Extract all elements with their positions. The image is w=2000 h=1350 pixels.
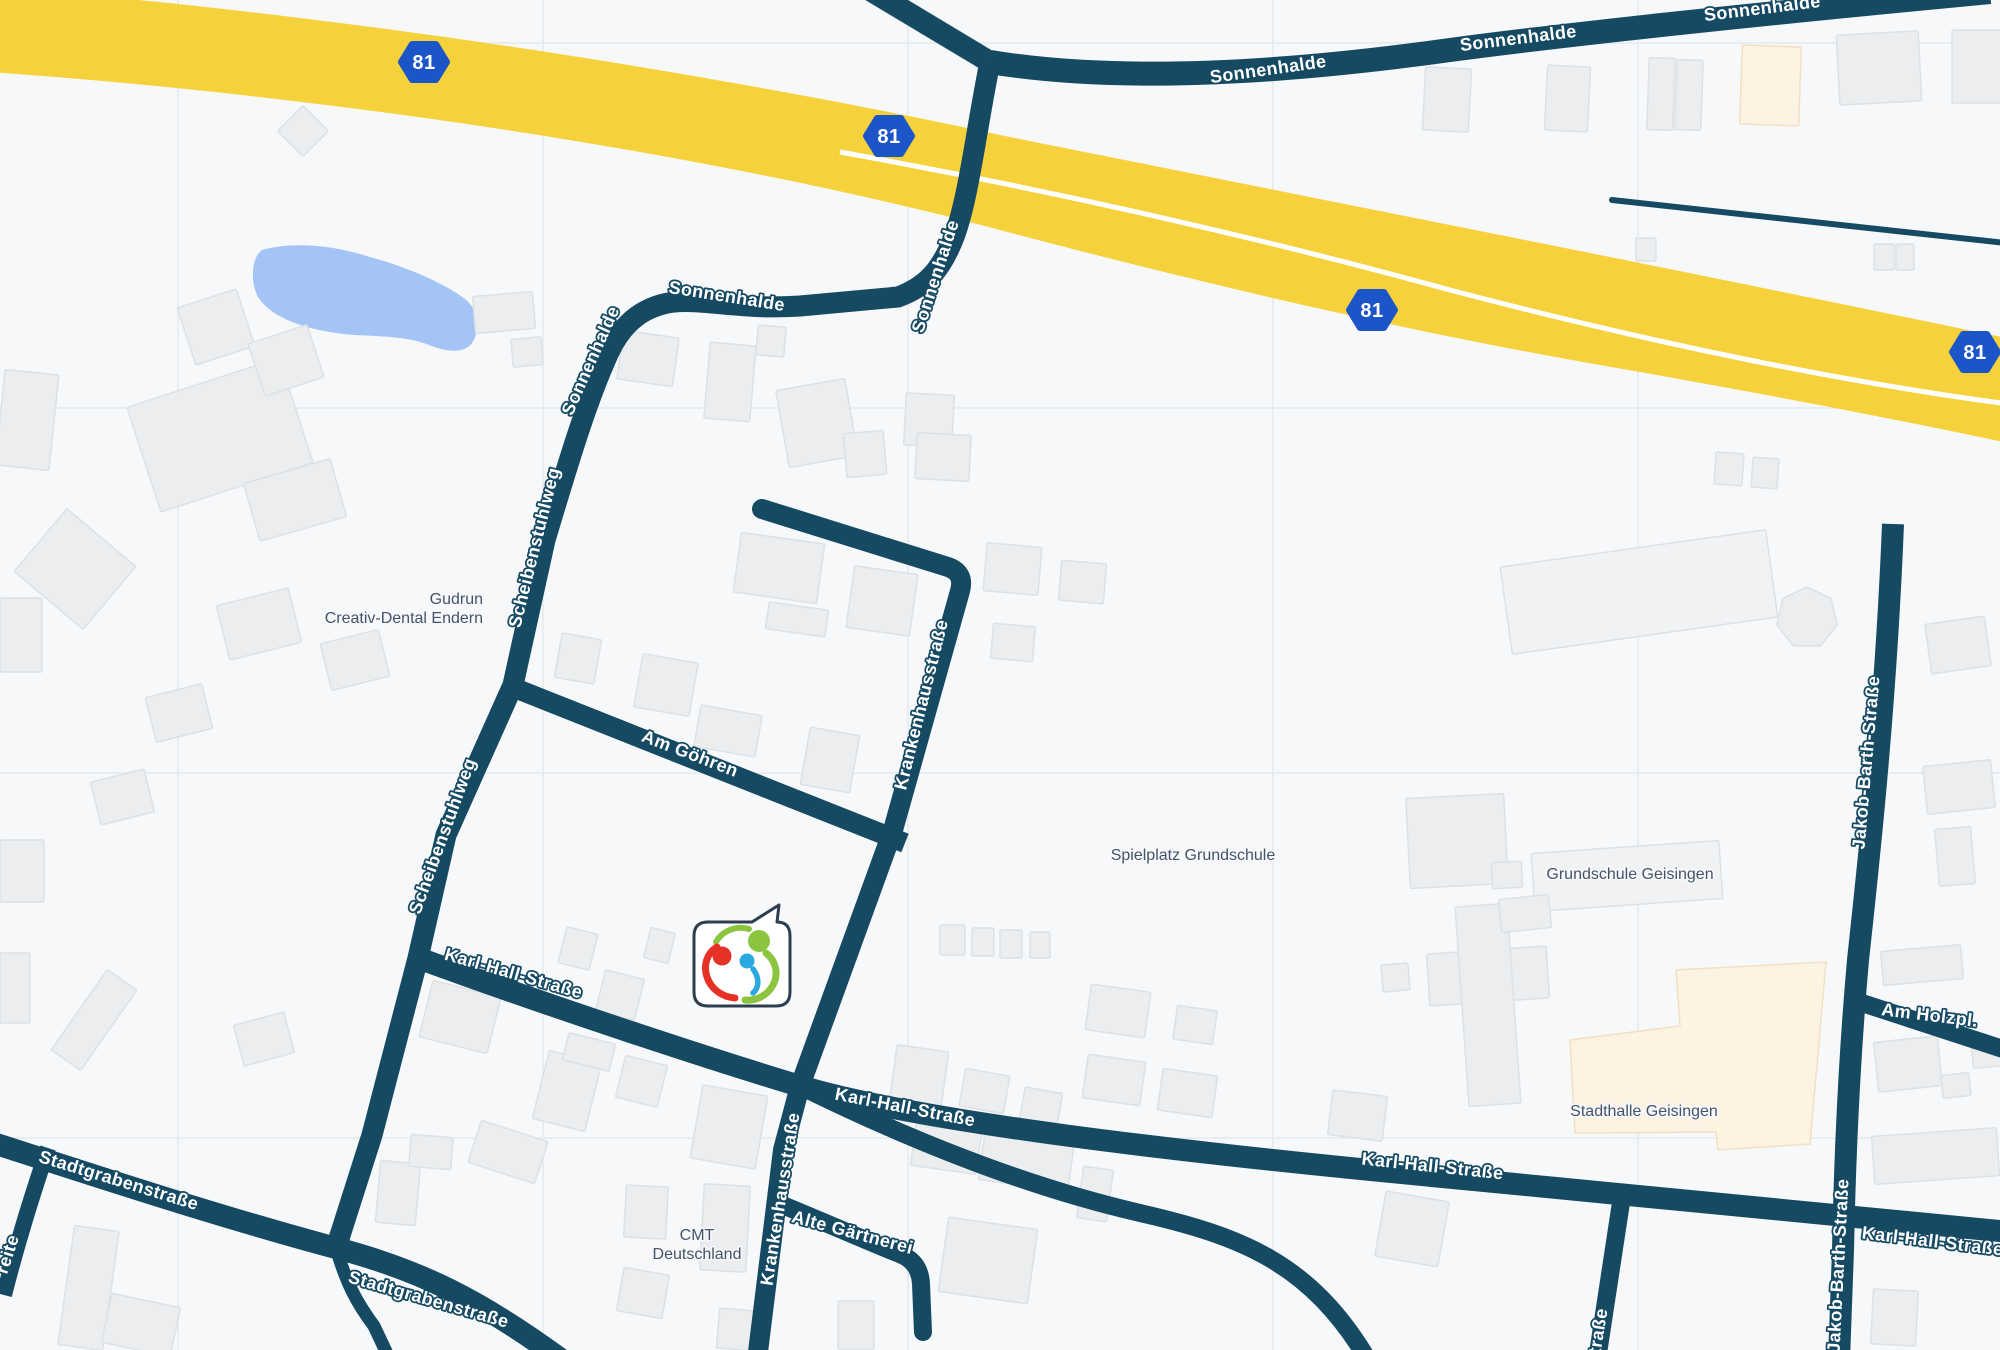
poi-label-gudrun-creativ-dental: Gudrun: [430, 591, 483, 608]
route-badge-81: 81: [1952, 334, 1998, 370]
route-badge-81: 81: [401, 44, 447, 80]
building: [1675, 60, 1703, 131]
building: [1941, 1073, 1971, 1099]
building: [473, 291, 536, 333]
building: [1836, 31, 1922, 105]
building: [838, 1301, 874, 1349]
building: [1157, 1068, 1217, 1117]
building: [1636, 238, 1656, 261]
building: [1058, 560, 1106, 604]
building: [1874, 244, 1894, 270]
poi-label-stadthalle-geisingen: Stadthalle Geisingen: [1570, 1103, 1718, 1120]
logo-head: [748, 930, 770, 952]
building: [1874, 1036, 1943, 1092]
building: [0, 840, 44, 902]
building: [940, 925, 965, 955]
building: [1896, 244, 1914, 270]
building: [1422, 67, 1471, 132]
logo-head: [713, 947, 732, 966]
building: [915, 433, 971, 482]
building: [1491, 861, 1522, 889]
building: [1740, 45, 1802, 126]
building: [554, 633, 601, 684]
building: [511, 337, 543, 368]
building: [972, 928, 994, 956]
building: [1871, 1128, 1999, 1185]
building: [1082, 1054, 1146, 1106]
building: [1085, 984, 1151, 1038]
building: [1871, 1289, 1919, 1346]
building: [634, 654, 699, 717]
building: [409, 1134, 454, 1170]
building: [1000, 930, 1022, 958]
map-canvas[interactable]: SonnenhaldeSonnenhaldeSonnenhaldeSonnenh…: [0, 0, 2000, 1350]
building: [624, 1185, 669, 1239]
building: [733, 532, 825, 603]
building: [846, 566, 918, 636]
route-badge-81: 81: [1349, 292, 1395, 328]
building: [1881, 945, 1964, 986]
building: [1498, 894, 1551, 932]
building: [1173, 1005, 1217, 1044]
building: [800, 727, 859, 793]
building: [1935, 827, 1976, 887]
building: [983, 543, 1042, 596]
building: [959, 1068, 1010, 1113]
route-badge-label: 81: [1360, 300, 1383, 322]
building: [1751, 457, 1779, 489]
logo-head: [740, 954, 755, 969]
building: [1375, 1191, 1449, 1267]
building: [617, 1267, 670, 1318]
poi-label-cmt-deutschland: CMT: [680, 1227, 715, 1244]
route-badge-label: 81: [412, 52, 435, 74]
building: [1925, 616, 1991, 674]
building: [0, 369, 59, 470]
building: [1381, 963, 1410, 992]
building: [1647, 58, 1675, 131]
building: [704, 342, 756, 422]
building: [1544, 65, 1590, 132]
route-badge-label: 81: [877, 126, 900, 148]
route-badge-label: 81: [1963, 342, 1986, 364]
building: [1714, 452, 1744, 486]
building: [1952, 30, 2000, 103]
building: [938, 1217, 1038, 1304]
building: [615, 1055, 667, 1107]
building: [991, 623, 1036, 662]
poi-label-cmt-deutschland: Deutschland: [653, 1246, 742, 1263]
poi-label-gudrun-creativ-dental: Creativ-Dental Endern: [325, 610, 483, 627]
building: [756, 325, 787, 357]
building: [375, 1160, 420, 1225]
map-image[interactable]: SonnenhaldeSonnenhaldeSonnenhaldeSonnenh…: [0, 0, 2000, 1350]
building: [1030, 932, 1050, 958]
building: [1923, 760, 1996, 815]
building: [0, 953, 30, 1023]
poi-label-grundschule-geisingen: Grundschule Geisingen: [1546, 866, 1713, 883]
building: [690, 1085, 768, 1169]
building: [0, 598, 42, 672]
building: [1327, 1090, 1387, 1141]
building: [843, 430, 887, 477]
poi-label-spielplatz-grundschule: Spielplatz Grundschule: [1111, 847, 1276, 864]
route-badge-81: 81: [866, 118, 912, 154]
